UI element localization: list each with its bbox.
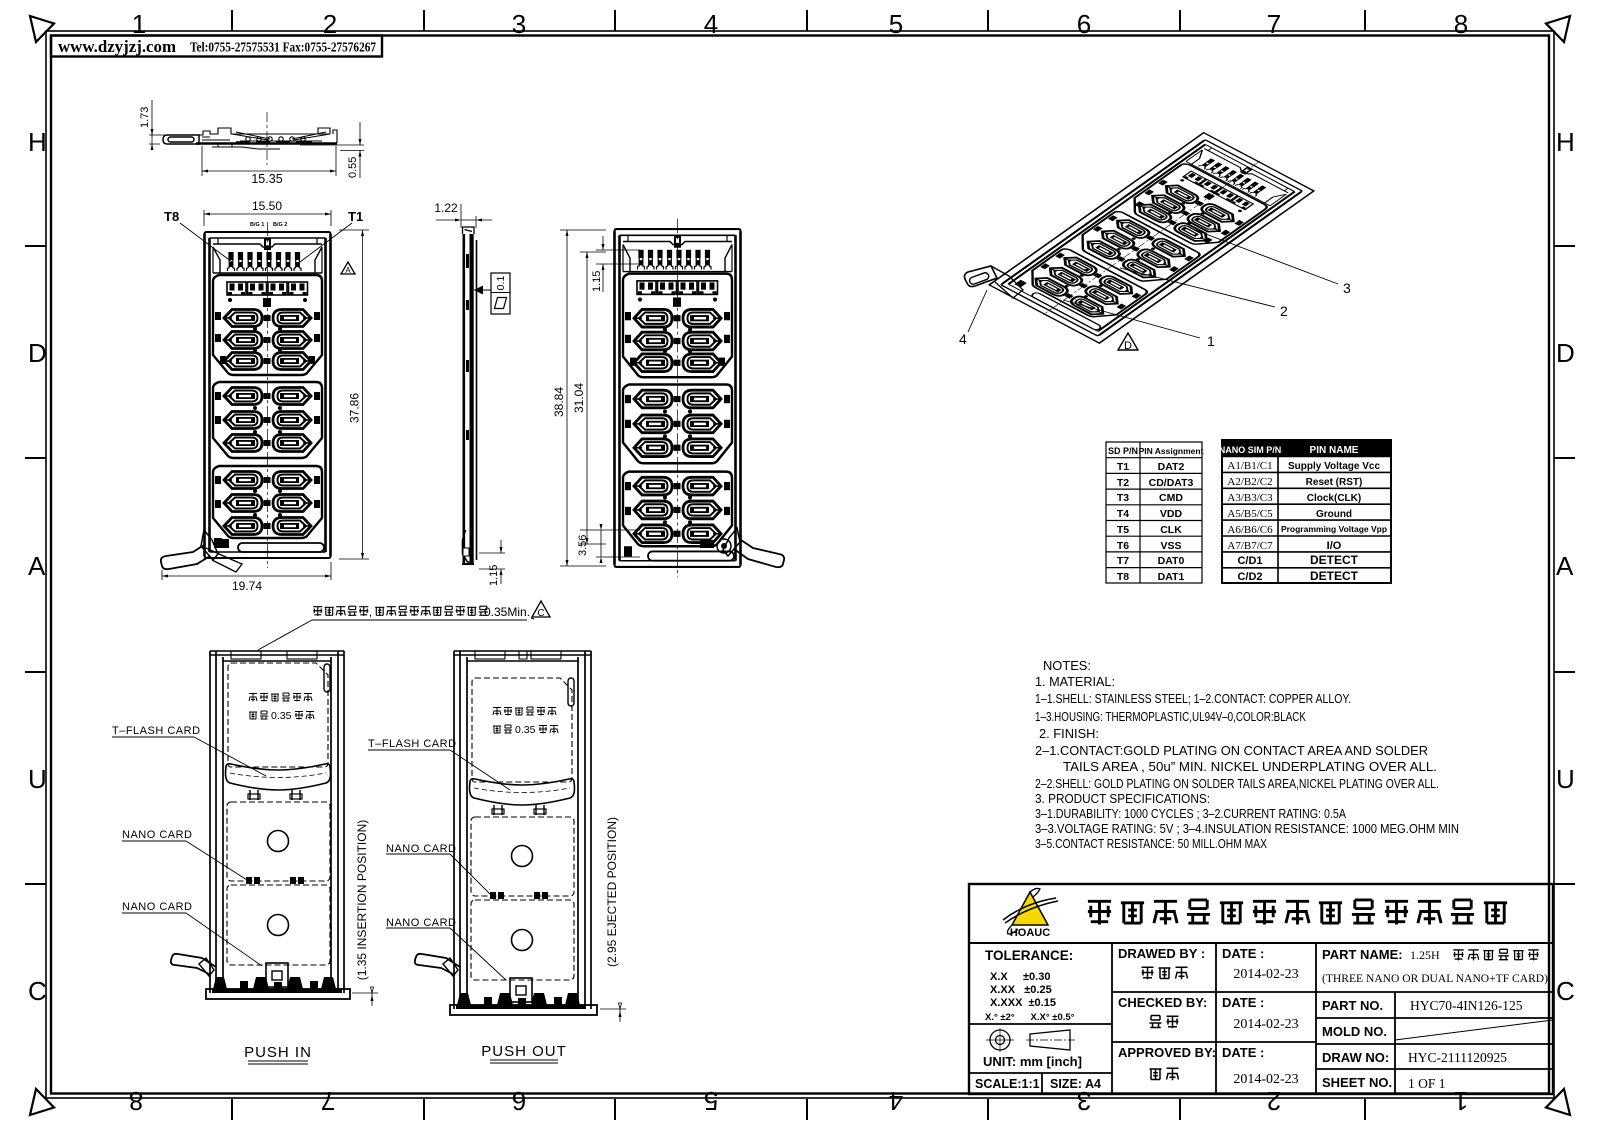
- svg-text:5: 5: [704, 1086, 718, 1116]
- svg-text:C: C: [28, 976, 47, 1006]
- svg-text:0.35: 0.35: [271, 710, 292, 722]
- svg-text:3.56: 3.56: [577, 535, 589, 556]
- svg-text:A3/B3/C3: A3/B3/C3: [1227, 492, 1273, 504]
- svg-text:SIZE: A4: SIZE: A4: [1050, 1077, 1101, 1091]
- svg-text:DAT2: DAT2: [1158, 461, 1185, 473]
- svg-text:B/G 1: B/G 1: [250, 222, 264, 228]
- svg-text:3–1.DURABILITY: 1000 CYCLES: 3–1.DURABILITY: 1000 CYCLES ; 3–2.CURREN…: [1035, 807, 1347, 821]
- svg-text:15.35: 15.35: [251, 172, 282, 186]
- svg-text:1.25H: 1.25H: [1410, 948, 1440, 962]
- svg-text:T1: T1: [1117, 461, 1129, 473]
- svg-text:PART NO.: PART NO.: [1322, 998, 1383, 1013]
- svg-text:T–FLASH CARD: T–FLASH CARD: [112, 725, 201, 737]
- svg-text:1.15: 1.15: [488, 565, 500, 586]
- svg-text:Clock(CLK): Clock(CLK): [1307, 493, 1361, 504]
- svg-text:PIN Assignment: PIN Assignment: [1139, 446, 1204, 456]
- svg-text:2: 2: [1280, 303, 1288, 319]
- svg-text:X.X ±0.30: X.X ±0.30: [990, 971, 1050, 983]
- svg-text:U: U: [28, 764, 47, 794]
- svg-text:PUSH OUT: PUSH OUT: [481, 1043, 567, 1060]
- svg-text:3–5.CONTACT RESISTANCE: 50: 3–5.CONTACT RESISTANCE: 50 MILL.OHM MAX: [1035, 837, 1268, 851]
- svg-text:TAILS AREA , 50u” MIN. NI: TAILS AREA , 50u” MIN. NICKEL UNDERPLATI…: [1063, 760, 1437, 774]
- svg-text:6: 6: [512, 1086, 526, 1116]
- svg-text:Reset (RST): Reset (RST): [1306, 477, 1363, 488]
- svg-text:CD/DAT3: CD/DAT3: [1149, 477, 1194, 489]
- svg-text:A: A: [1556, 551, 1574, 581]
- svg-text:A: A: [345, 266, 351, 275]
- svg-text:NANO CARD: NANO CARD: [386, 917, 457, 929]
- svg-text:0.35: 0.35: [515, 724, 536, 736]
- svg-text:DETECT: DETECT: [1310, 553, 1359, 567]
- svg-text:D: D: [1124, 340, 1132, 352]
- svg-text:8: 8: [129, 1086, 143, 1116]
- svg-text:DATE :: DATE :: [1222, 995, 1264, 1010]
- svg-text:U: U: [1556, 764, 1575, 794]
- svg-text:I/O: I/O: [1327, 540, 1342, 552]
- svg-text:X.XXX ±0.15: X.XXX ±0.15: [990, 997, 1056, 1009]
- svg-text:7: 7: [321, 1086, 335, 1116]
- svg-text:CHECKED BY:: CHECKED BY:: [1118, 995, 1207, 1010]
- svg-text:HYC-2111120925: HYC-2111120925: [1408, 1050, 1507, 1065]
- svg-text:1.22: 1.22: [434, 201, 458, 215]
- svg-text:7: 7: [1267, 9, 1281, 39]
- svg-text:1–3.HOUSING: THERMOPLASTIC,UL: 1–3.HOUSING: THERMOPLASTIC,UL94V–0,COLOR…: [1035, 710, 1307, 724]
- svg-text:2014-02-23: 2014-02-23: [1233, 967, 1298, 982]
- svg-text:1: 1: [1454, 1086, 1468, 1116]
- svg-text:1.15: 1.15: [591, 271, 603, 292]
- svg-text:DRAWED BY :: DRAWED BY :: [1118, 946, 1205, 961]
- svg-text:19.74: 19.74: [232, 579, 262, 593]
- svg-text:Tel:0755-27575531 Fax:0755-27: Tel:0755-27575531 Fax:0755-27576267: [190, 40, 376, 55]
- svg-text:CLK: CLK: [1160, 524, 1182, 536]
- svg-text:VSS: VSS: [1160, 540, 1181, 552]
- svg-text:DAT0: DAT0: [1158, 555, 1185, 567]
- svg-text:B/G 2: B/G 2: [273, 222, 287, 228]
- svg-text:2–1.CONTACT:GOLD PLATING ON: 2–1.CONTACT:GOLD PLATING ON CONTACT AREA…: [1035, 744, 1428, 758]
- svg-text:Ground: Ground: [1316, 509, 1352, 520]
- svg-text:(THREE NANO OR DUAL NANO+TF CA: (THREE NANO OR DUAL NANO+TF CARD): [1322, 971, 1548, 985]
- svg-text:C: C: [1556, 976, 1575, 1006]
- svg-text:DAT1: DAT1: [1158, 571, 1185, 583]
- svg-text:PART NAME:: PART NAME:: [1322, 947, 1403, 962]
- svg-text:31.04: 31.04: [572, 383, 586, 413]
- svg-text:X.° ±2° X.X° ±0.5°: X.° ±2° X.X° ±0.5°: [985, 1012, 1075, 1023]
- svg-text:37.86: 37.86: [348, 393, 362, 423]
- svg-text:3. PRODUCT SPECIFICATIONS:: 3. PRODUCT SPECIFICATIONS:: [1035, 792, 1210, 806]
- svg-text:2. FINISH:: 2. FINISH:: [1039, 727, 1099, 741]
- svg-text:H: H: [28, 127, 47, 157]
- svg-text:C/D2: C/D2: [1237, 571, 1262, 583]
- svg-text:0.1: 0.1: [495, 276, 507, 291]
- svg-text:4: 4: [704, 9, 718, 39]
- svg-text:Supply Voltage Vcc: Supply Voltage Vcc: [1288, 461, 1380, 472]
- svg-text:5: 5: [889, 9, 903, 39]
- svg-text:15.50: 15.50: [252, 199, 282, 213]
- svg-text:3: 3: [1343, 280, 1351, 296]
- svg-text:1: 1: [1207, 333, 1215, 349]
- svg-text:T3: T3: [1117, 492, 1129, 504]
- svg-text:SHEET NO.: SHEET NO.: [1322, 1075, 1392, 1090]
- svg-text:T1: T1: [348, 209, 363, 224]
- svg-text:A5/B5/C5: A5/B5/C5: [1227, 508, 1273, 520]
- svg-text:0.35Min.: 0.35Min.: [484, 605, 530, 619]
- svg-text:DATE :: DATE :: [1222, 946, 1264, 961]
- svg-text:T–FLASH CARD: T–FLASH CARD: [368, 738, 457, 750]
- svg-text:2014-02-23: 2014-02-23: [1233, 1072, 1298, 1087]
- svg-text:1–1.SHELL: STAINLESS STEEL;: 1–1.SHELL: STAINLESS STEEL; 1–2.CONTACT:…: [1035, 692, 1351, 706]
- svg-text:T7: T7: [1117, 555, 1129, 567]
- svg-text:NOTES:: NOTES:: [1043, 659, 1091, 673]
- svg-text:PUSH IN: PUSH IN: [244, 1044, 312, 1061]
- svg-text:A: A: [28, 551, 46, 581]
- svg-text:NANO CARD: NANO CARD: [122, 829, 193, 841]
- svg-text:C: C: [537, 608, 544, 619]
- svg-text:VDD: VDD: [1160, 508, 1183, 520]
- svg-text:3: 3: [512, 9, 526, 39]
- svg-text:UNIT: mm [inch]: UNIT: mm [inch]: [983, 1054, 1082, 1069]
- svg-text:2014-02-23: 2014-02-23: [1233, 1017, 1298, 1032]
- svg-text:DATE :: DATE :: [1222, 1045, 1264, 1060]
- svg-text:Programming Voltage Vpp: Programming Voltage Vpp: [1281, 524, 1387, 534]
- svg-text:APPROVED BY:: APPROVED BY:: [1118, 1045, 1216, 1060]
- svg-text:2: 2: [1267, 1086, 1281, 1116]
- svg-text:A1/B1/C1: A1/B1/C1: [1227, 460, 1272, 472]
- svg-text:HYC70-4IN126-125: HYC70-4IN126-125: [1410, 998, 1523, 1013]
- svg-text:DRAW NO:: DRAW NO:: [1322, 1050, 1389, 1065]
- svg-text:MOLD NO.: MOLD NO.: [1322, 1024, 1387, 1039]
- svg-text:1 OF 1: 1 OF 1: [1408, 1076, 1446, 1091]
- svg-text:T4: T4: [1117, 508, 1129, 520]
- svg-text:6: 6: [1077, 9, 1091, 39]
- svg-text:TOLERANCE:: TOLERANCE:: [985, 948, 1073, 963]
- svg-text:H: H: [1556, 127, 1575, 157]
- svg-text:NANO CARD: NANO CARD: [386, 843, 457, 855]
- svg-text:D: D: [1556, 338, 1575, 368]
- svg-text:4: 4: [889, 1086, 903, 1116]
- svg-text:HOAUC: HOAUC: [1010, 927, 1050, 939]
- svg-text:T8: T8: [164, 209, 179, 224]
- svg-text:DETECT: DETECT: [1310, 569, 1359, 583]
- svg-text:(1.35 INSERTION POSITION): (1.35 INSERTION POSITION): [355, 820, 369, 980]
- svg-text:PIN NAME: PIN NAME: [1310, 445, 1359, 456]
- svg-text:C/D1: C/D1: [1237, 555, 1262, 567]
- svg-text:(2.95 EJECTED POSITION): (2.95 EJECTED POSITION): [605, 817, 619, 967]
- svg-text:0.55: 0.55: [347, 157, 359, 178]
- svg-text:NANO CARD: NANO CARD: [122, 901, 193, 913]
- svg-text:T6: T6: [1117, 540, 1129, 552]
- svg-text:T5: T5: [1117, 524, 1129, 536]
- svg-text:2–2.SHELL: GOLD PLATING ON: 2–2.SHELL: GOLD PLATING ON SOLDER TAILS …: [1035, 777, 1439, 791]
- svg-text:4: 4: [959, 331, 967, 347]
- svg-text:8: 8: [1454, 9, 1468, 39]
- svg-text:www.dzyjzj.com: www.dzyjzj.com: [58, 37, 176, 56]
- svg-text:D: D: [28, 338, 47, 368]
- svg-text:SD P/N: SD P/N: [1108, 446, 1138, 456]
- svg-text:3–3.VOLTAGE RATING: 5V ;: 3–3.VOLTAGE RATING: 5V ; 3–4.INSULATION …: [1035, 822, 1459, 836]
- svg-text:NANO SIM P/N: NANO SIM P/N: [1219, 445, 1282, 455]
- svg-text:A2/B2/C2: A2/B2/C2: [1227, 476, 1272, 488]
- svg-text:T2: T2: [1117, 477, 1129, 489]
- svg-text:SCALE:1:1: SCALE:1:1: [975, 1077, 1040, 1091]
- svg-text:1.73: 1.73: [139, 107, 151, 128]
- svg-text:X.XX ±0.25: X.XX ±0.25: [990, 984, 1052, 996]
- svg-text:T8: T8: [1117, 571, 1129, 583]
- svg-text:1. MATERIAL:: 1. MATERIAL:: [1035, 675, 1115, 689]
- svg-text:CMD: CMD: [1159, 492, 1183, 504]
- svg-text:A6/B6/C6: A6/B6/C6: [1227, 524, 1273, 536]
- svg-text:,: ,: [369, 607, 372, 619]
- svg-text:38.84: 38.84: [552, 387, 566, 417]
- svg-text:A7/B7/C7: A7/B7/C7: [1227, 540, 1273, 552]
